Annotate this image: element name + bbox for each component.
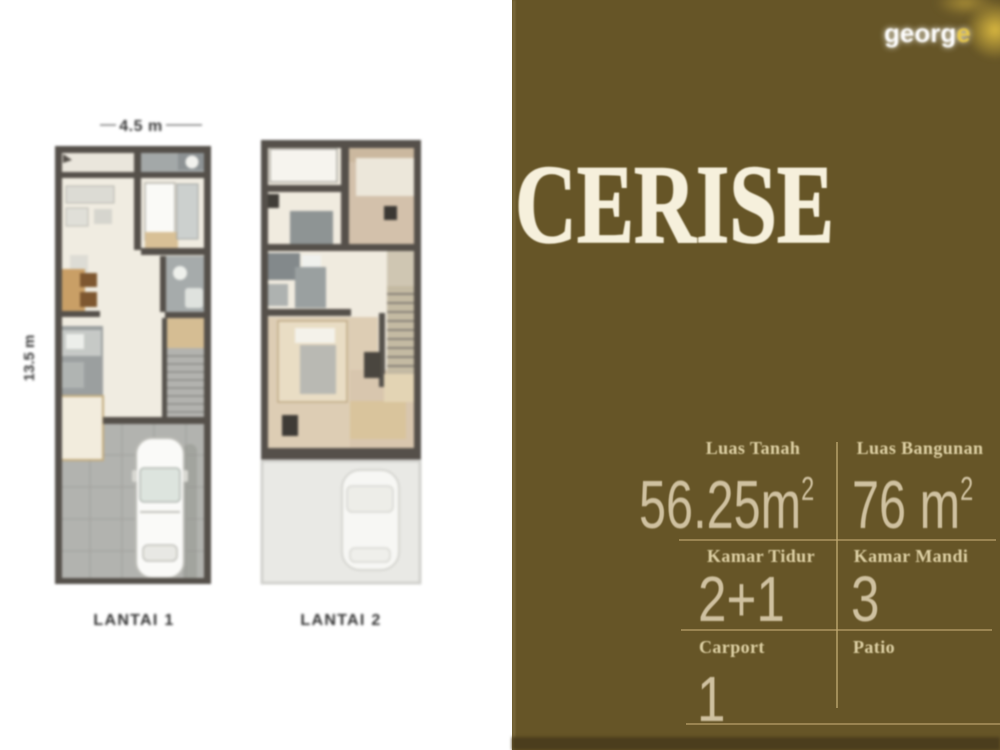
svg-text:4.5 m: 4.5 m	[119, 118, 162, 135]
svg-text:LANTAI 1: LANTAI 1	[93, 612, 174, 629]
svg-text:13.5 m: 13.5 m	[21, 335, 38, 382]
svg-text:LANTAI 2: LANTAI 2	[300, 612, 381, 629]
